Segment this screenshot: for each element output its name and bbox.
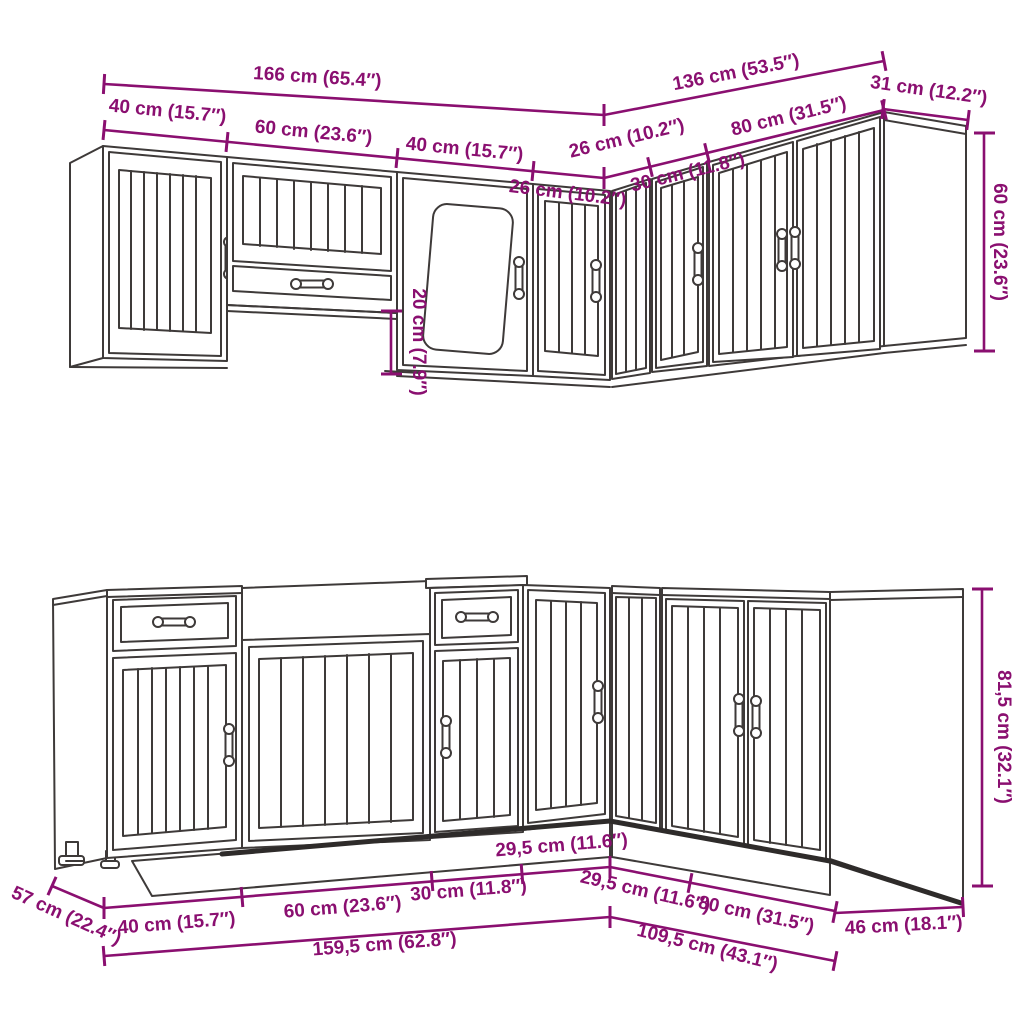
dim-base-height: 81,5 cm (32.1″) [993, 670, 1014, 804]
dim-wall-cab2-width: 60 cm (23.6″) [254, 116, 373, 148]
base-cab4-door-handle [593, 681, 603, 723]
base-cab3-drawer-handle [456, 612, 498, 622]
wall-cab3-handle [514, 257, 524, 299]
wall-cab6-handle [693, 243, 703, 285]
base-cab1-drawer-handle [153, 617, 195, 627]
diagram-canvas: 166 cm (65.4″) 136 cm (53.5″) 31 cm (12.… [0, 0, 1024, 1024]
dim-base-cab6-width: 80 cm (31.5″) [696, 892, 816, 937]
dim-wall-cab1-width: 40 cm (15.7″) [108, 95, 227, 127]
wall-cab7-handle-left [777, 229, 787, 271]
dim-wall-total-left: 166 cm (65.4″) [253, 63, 383, 92]
base-end-panel [830, 589, 963, 903]
wall-end-panel [884, 112, 966, 346]
base-side-panel [53, 590, 107, 869]
base-cab6-handle-right [751, 696, 761, 738]
wall-cab4-handle [591, 260, 601, 302]
dim-base-total-left: 159,5 cm (62.8″) [312, 929, 457, 961]
base-cab6-handle-left [734, 694, 744, 736]
dim-wall-cab5-width: 26 cm (10.2″) [567, 115, 687, 163]
wall-cab3-glass-panel [422, 203, 514, 355]
base-cab3-door-handle [441, 716, 451, 758]
dim-wall-depth-right: 31 cm (12.2″) [869, 72, 989, 109]
dim-base-cab3-width: 30 cm (11.8″) [409, 875, 527, 905]
wall-side-panel [70, 146, 103, 367]
dim-base-total-right: 109,5 cm (43.1″) [635, 920, 780, 975]
wall-cab2-drawer-handle [291, 279, 333, 289]
dim-base-cab2-width: 60 cm (23.6″) [283, 892, 402, 922]
wall-cab7-handle-right [790, 227, 800, 269]
dim-wall-height: 60 cm (23.6″) [989, 183, 1010, 301]
base-cab1-door-handle [224, 724, 234, 766]
cabinet-dimension-diagram: 166 cm (65.4″) 136 cm (53.5″) 31 cm (12.… [0, 0, 1024, 1024]
dim-base-depth-right: 46 cm (18.1″) [844, 912, 963, 939]
dim-base-cab1-width: 40 cm (15.7″) [117, 908, 236, 938]
dim-wall-lift-gap: 20 cm (7.9″) [408, 288, 429, 395]
